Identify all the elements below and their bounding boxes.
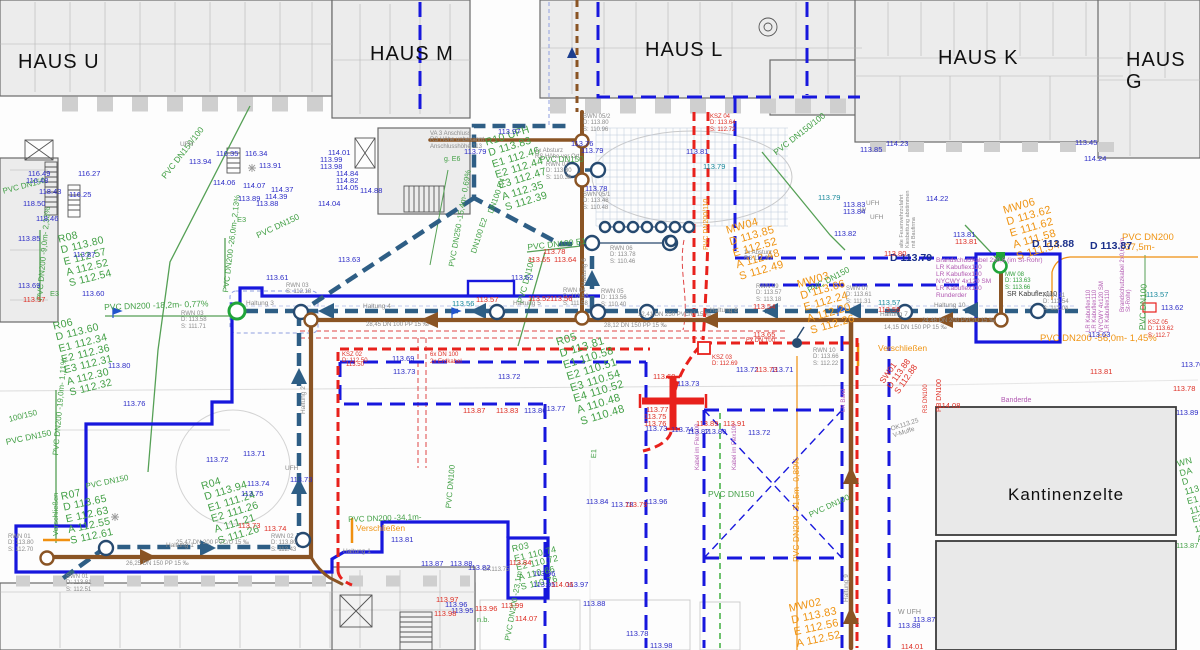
pipes-brown (47, 112, 1003, 648)
rwn10-marker (792, 338, 802, 348)
survey-crosses (111, 164, 256, 521)
site-plan: HAUS UHAUS MHAUS LHAUS KHAUS GKantinenze… (0, 0, 1200, 650)
plan-linework (0, 0, 1200, 650)
